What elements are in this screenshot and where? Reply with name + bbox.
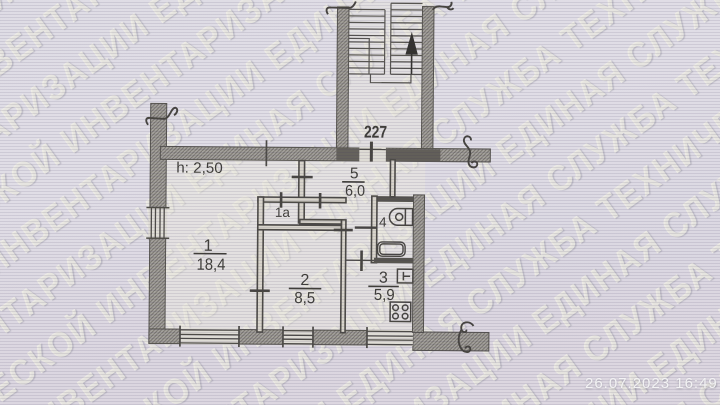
svg-text:2: 2 xyxy=(300,272,309,289)
svg-text:5,9: 5,9 xyxy=(374,287,395,304)
svg-text:6,0: 6,0 xyxy=(345,183,365,200)
svg-text:18,4: 18,4 xyxy=(196,256,225,274)
svg-text:227: 227 xyxy=(364,123,387,142)
svg-text:1a: 1a xyxy=(275,205,291,220)
svg-text:3: 3 xyxy=(379,270,388,287)
svg-text:5: 5 xyxy=(350,165,359,182)
svg-text:h: 2,50: h: 2,50 xyxy=(176,160,223,177)
svg-text:1: 1 xyxy=(203,237,212,255)
svg-text:8,5: 8,5 xyxy=(294,290,315,307)
svg-text:4: 4 xyxy=(379,215,387,230)
